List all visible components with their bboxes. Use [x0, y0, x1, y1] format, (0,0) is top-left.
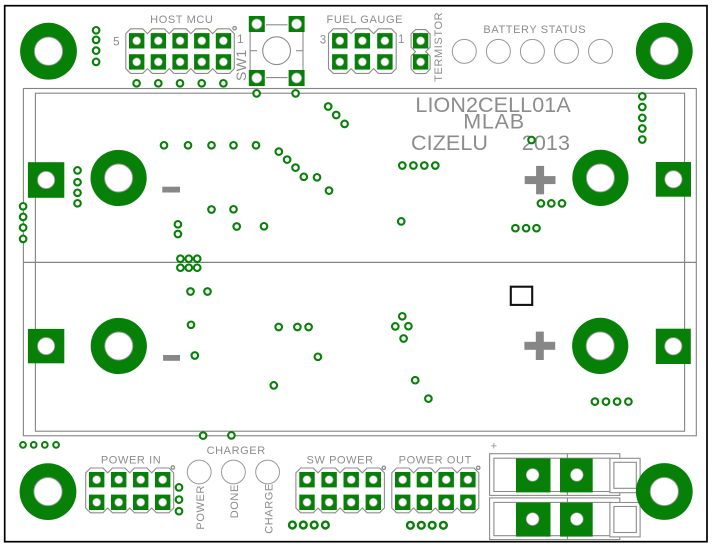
svg-text:5: 5	[113, 36, 119, 48]
svg-text:POWER: POWER	[195, 485, 207, 530]
svg-text:CHARGER: CHARGER	[207, 445, 266, 457]
svg-text:TERMISTOR: TERMISTOR	[433, 12, 445, 82]
svg-text:BATTERY STATUS: BATTERY STATUS	[483, 24, 586, 36]
svg-text:FUEL GAUGE: FUEL GAUGE	[327, 14, 404, 26]
svg-text:DONE: DONE	[229, 484, 241, 518]
svg-text:1: 1	[237, 34, 243, 46]
svg-text:CHARGE: CHARGE	[263, 483, 275, 534]
svg-text:SW POWER: SW POWER	[307, 455, 374, 467]
svg-text:3: 3	[320, 34, 326, 46]
svg-text:POWER OUT: POWER OUT	[399, 455, 472, 467]
svg-text:CIZELU: CIZELU	[411, 131, 488, 155]
svg-text:MLAB: MLAB	[463, 110, 525, 134]
svg-text:+: +	[491, 441, 497, 453]
svg-text:POWER IN: POWER IN	[101, 455, 161, 467]
svg-text:HOST MCU: HOST MCU	[150, 14, 213, 26]
svg-text:SW1: SW1	[233, 49, 249, 81]
svg-text:1: 1	[398, 34, 404, 46]
